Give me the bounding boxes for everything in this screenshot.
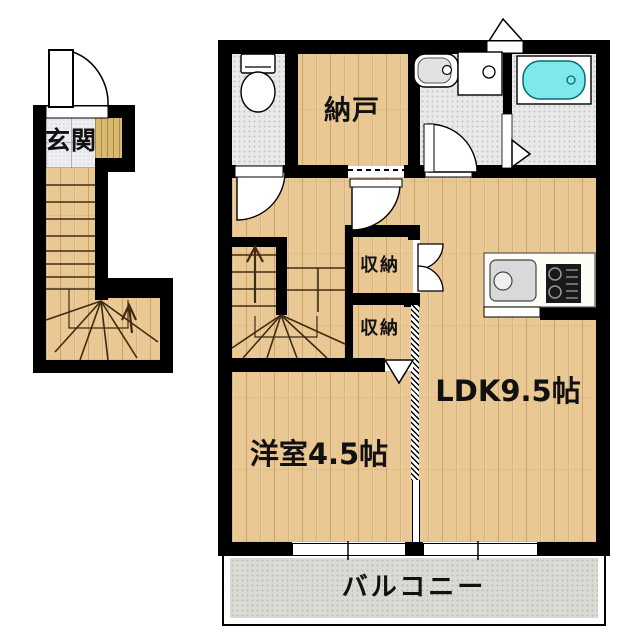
room-label-closet-lower: 収納	[360, 314, 400, 340]
genkan-step-board	[95, 118, 122, 160]
balcony-window-ldk	[423, 543, 538, 556]
room-label-closet-upper: 収納	[360, 251, 400, 277]
sliding-door-panel	[411, 305, 419, 480]
sliding-door-track	[412, 480, 420, 542]
room-label-western-room: 洋室4.5帖	[250, 431, 388, 473]
floor-plan: 玄関 納戸 収納 収納 LDK9.5帖 洋室4.5帖 バルコニー	[0, 0, 640, 640]
toilet-floor	[232, 54, 285, 165]
stairs-1f-floor-winder	[108, 298, 160, 360]
washroom-floor	[420, 54, 503, 165]
room-label-nando: 納戸	[324, 89, 380, 128]
balcony-window-west-room	[292, 543, 406, 556]
bathroom-floor	[512, 54, 596, 165]
room-label-balcony: バルコニー	[342, 567, 486, 604]
room-label-genkan: 玄関	[45, 121, 97, 157]
room-label-ldk: LDK9.5帖	[435, 368, 580, 410]
